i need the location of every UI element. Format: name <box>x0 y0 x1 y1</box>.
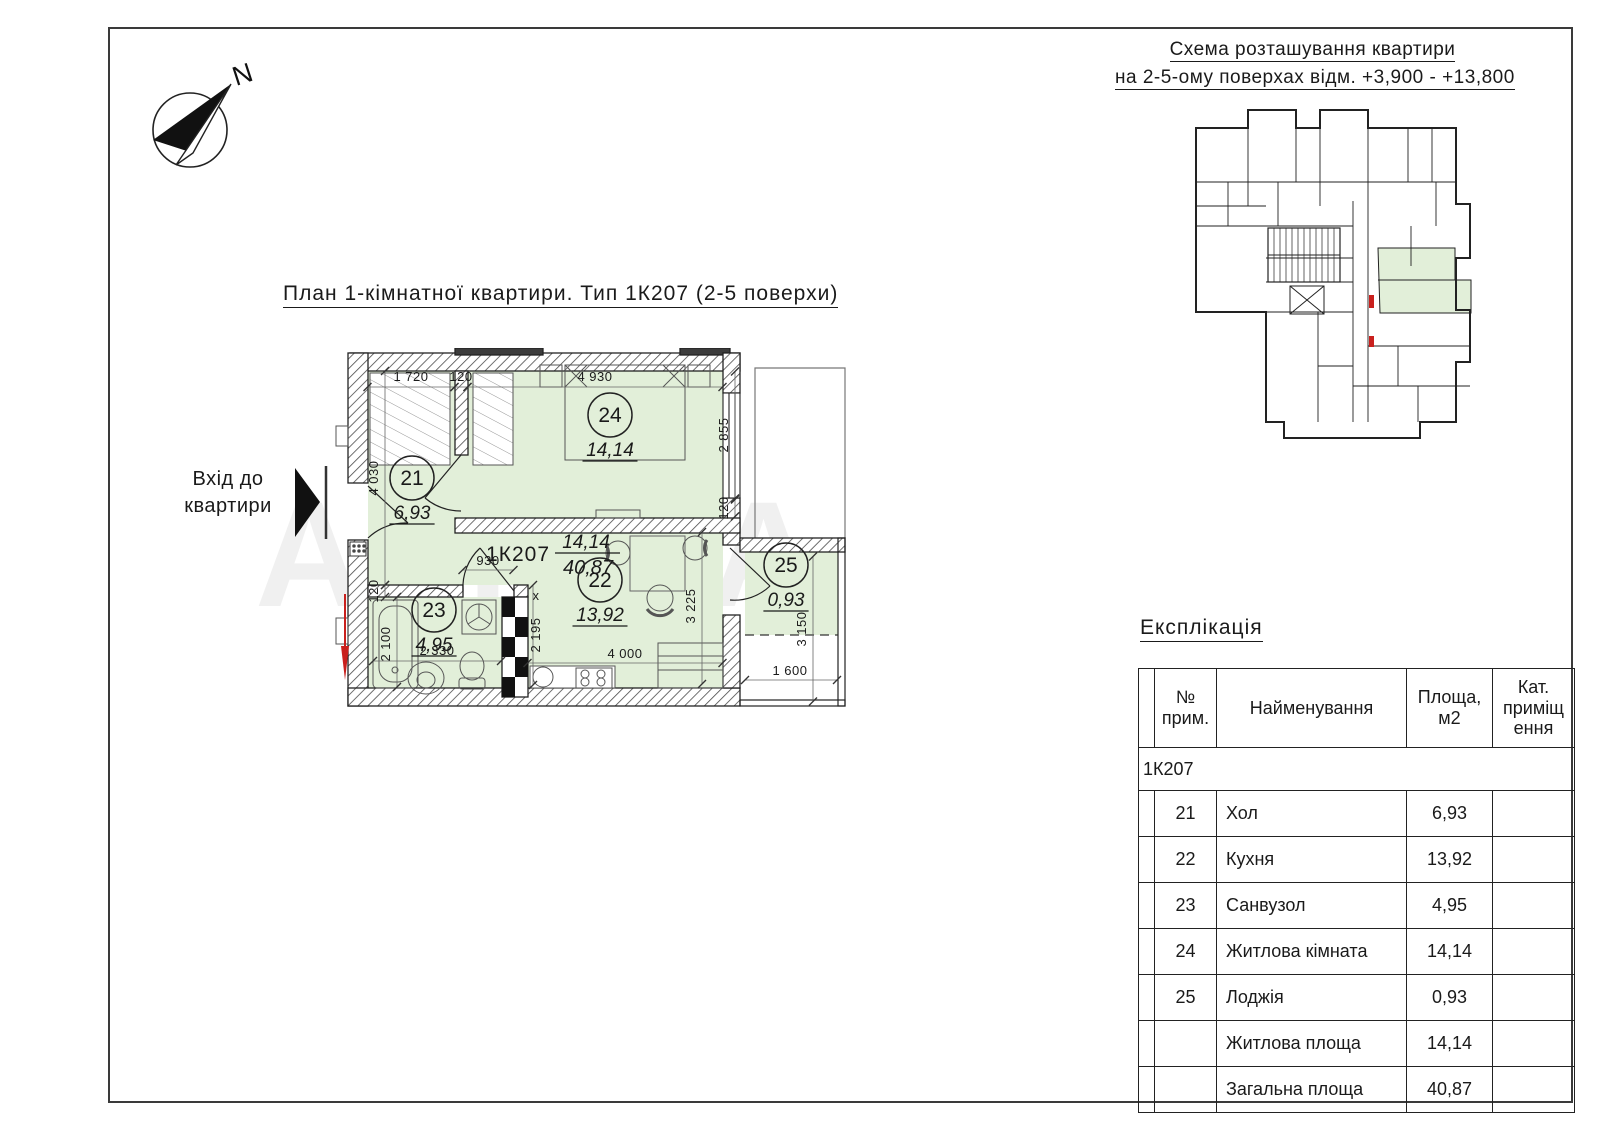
cell-room-number: 23 <box>1155 883 1217 929</box>
dimension-label: 4 930 <box>577 369 612 384</box>
north-compass: N <box>136 56 261 181</box>
dimension-label: 120 <box>366 579 381 602</box>
room-area: 4,95 <box>416 635 453 656</box>
red-marks <box>1369 295 1374 347</box>
dimension-label: х <box>533 588 540 603</box>
cell-spacer <box>1139 929 1155 975</box>
cell-room-area: 4,95 <box>1407 883 1493 929</box>
cell-spacer <box>1139 791 1155 837</box>
cell-spacer <box>1139 975 1155 1021</box>
header-spacer <box>1139 669 1155 748</box>
room-number: 23 <box>422 599 445 622</box>
room-area: 6,93 <box>394 503 431 524</box>
page-title: План 1-кімнатної квартири. Тип 1К207 (2-… <box>283 282 838 306</box>
room-number: 24 <box>598 404 622 427</box>
cell-room-name: Хол <box>1217 791 1407 837</box>
room-number: 22 <box>588 569 611 592</box>
cell-spacer <box>1139 1067 1155 1113</box>
cell-room-name: Житлова площа <box>1217 1021 1407 1067</box>
header-name: Найменування <box>1217 669 1407 748</box>
neighbor-outline <box>755 368 845 538</box>
cell-room-category <box>1493 791 1575 837</box>
north-arrow-icon <box>153 84 231 167</box>
explication-body: 21Хол6,9322Кухня13,9223Санвузол4,9524Жит… <box>1139 791 1575 1113</box>
cell-room-name: Кухня <box>1217 837 1407 883</box>
entrance-arrow-icon <box>295 466 326 539</box>
kitchen-counter <box>530 666 615 688</box>
dimension-label: 1 720 <box>393 369 428 384</box>
header-num: № прим. <box>1155 669 1217 748</box>
room-number: 21 <box>400 467 423 490</box>
cell-room-name: Лоджія <box>1217 975 1407 1021</box>
group-code: 1К207 <box>1139 748 1575 791</box>
dimension-label: 2 100 <box>378 626 393 661</box>
scheme-title: Схема розташування квартири на 2-5-ому п… <box>1115 36 1510 91</box>
cell-spacer <box>1139 1021 1155 1067</box>
floor-plan: 1К207 14,14 40,87 1 7201204 9302 8551204… <box>240 348 860 718</box>
header-row: № прим. Найменування Площа, м2 Кат. прим… <box>1139 669 1575 748</box>
table-row: Житлова площа14,14 <box>1139 1021 1575 1067</box>
dimension-label: 2 195 <box>528 617 543 652</box>
room-number: 25 <box>774 554 797 577</box>
cell-room-area: 14,14 <box>1407 1021 1493 1067</box>
header-area: Площа, м2 <box>1407 669 1493 748</box>
table-row: 21Хол6,93 <box>1139 791 1575 837</box>
dimension-label: 4 000 <box>607 646 642 661</box>
header-category: Кат. приміщ ення <box>1493 669 1575 748</box>
table-row: 24Житлова кімната14,14 <box>1139 929 1575 975</box>
dimension-label: 120 <box>716 496 731 519</box>
cell-room-name: Загальна площа <box>1217 1067 1407 1113</box>
cell-room-category <box>1493 837 1575 883</box>
dimension-label: 4 030 <box>366 460 381 495</box>
cell-room-area: 14,14 <box>1407 929 1493 975</box>
dimension-label: 2 855 <box>716 417 731 452</box>
cell-room-number: 22 <box>1155 837 1217 883</box>
cell-room-area: 13,92 <box>1407 837 1493 883</box>
cell-room-name: Житлова кімната <box>1217 929 1407 975</box>
table-row: 23Санвузол4,95 <box>1139 883 1575 929</box>
group-row: 1К207 <box>1139 748 1575 791</box>
cell-room-category <box>1493 1021 1575 1067</box>
cell-room-area: 0,93 <box>1407 975 1493 1021</box>
cell-room-category <box>1493 929 1575 975</box>
cell-room-area: 40,87 <box>1407 1067 1493 1113</box>
cell-room-area: 6,93 <box>1407 791 1493 837</box>
north-label: N <box>229 57 257 92</box>
table-row: 25Лоджія0,93 <box>1139 975 1575 1021</box>
room-area: 13,92 <box>576 605 624 626</box>
explication-table: № прим. Найменування Площа, м2 Кат. прим… <box>1138 668 1575 1113</box>
cell-spacer <box>1139 883 1155 929</box>
cell-room-number: 24 <box>1155 929 1217 975</box>
cell-room-category <box>1493 883 1575 929</box>
cell-room-category <box>1493 975 1575 1021</box>
cell-spacer <box>1139 837 1155 883</box>
dimension-label: 930 <box>476 553 499 568</box>
stair-core <box>1268 228 1340 282</box>
room-area: 14,14 <box>586 440 634 461</box>
living-area-label: 14,14 <box>562 532 610 553</box>
table-row: 22Кухня13,92 <box>1139 837 1575 883</box>
room-area: 0,93 <box>768 590 805 611</box>
cell-room-category <box>1493 1067 1575 1113</box>
cell-room-number: 21 <box>1155 791 1217 837</box>
dimension-label: 1 600 <box>772 663 807 678</box>
table-row: Загальна площа40,87 <box>1139 1067 1575 1113</box>
dimension-label: 3 225 <box>683 588 698 623</box>
location-scheme <box>1168 86 1483 461</box>
vent-shaft <box>502 597 528 697</box>
dimension-label: 3 150 <box>794 611 809 646</box>
drawing-sheet: { "page": {"bg": "#ffffff", "frame_color… <box>0 0 1600 1132</box>
explication-title: Експлікація <box>1140 616 1263 640</box>
cell-room-number <box>1155 1021 1217 1067</box>
dimension-label: 120 <box>449 369 472 384</box>
electrical-panel-icon <box>350 542 366 556</box>
cell-room-number: 25 <box>1155 975 1217 1021</box>
cell-room-number <box>1155 1067 1217 1113</box>
cell-room-name: Санвузол <box>1217 883 1407 929</box>
elevator <box>1290 286 1324 314</box>
